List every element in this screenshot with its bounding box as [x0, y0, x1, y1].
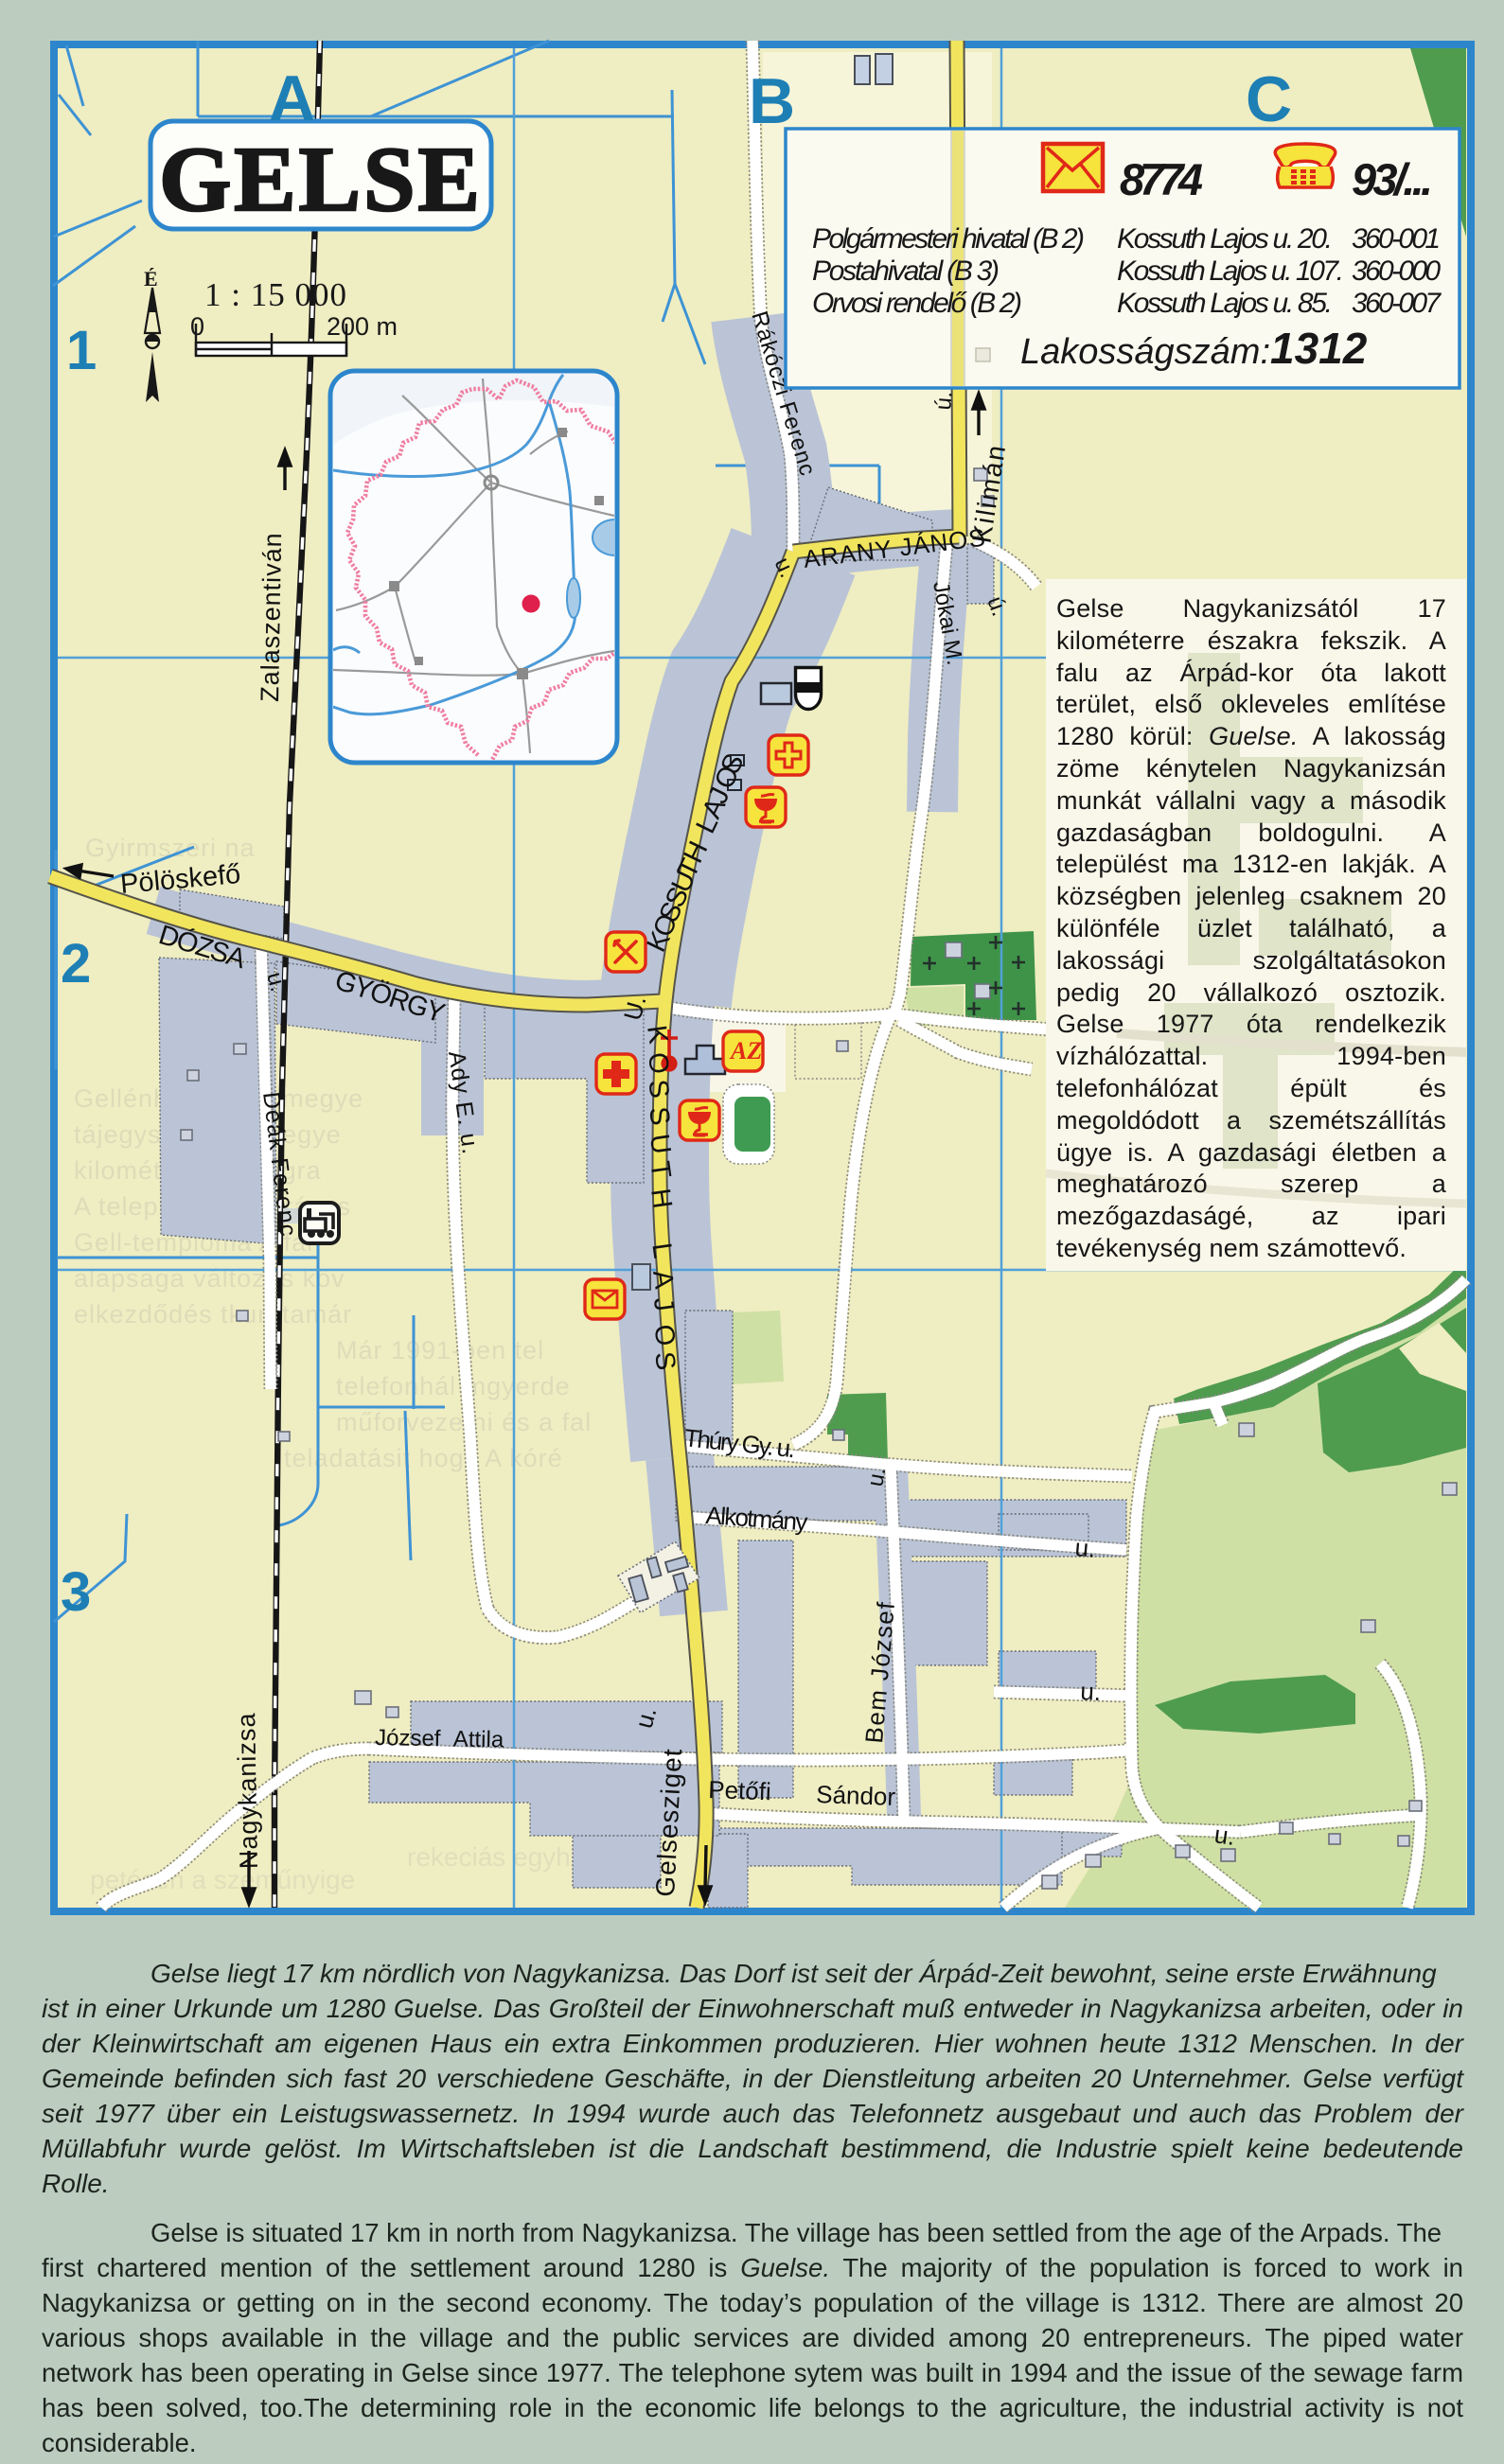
svg-text:1 : 15 000: 1 : 15 000	[204, 276, 347, 313]
svg-text:360-007: 360-007	[1352, 288, 1442, 319]
svg-text:telefonhál mgyerde: telefonhál mgyerde	[336, 1372, 571, 1400]
svg-text:Nagykanizsa: Nagykanizsa	[232, 1712, 263, 1869]
svg-text:0: 0	[190, 312, 204, 341]
svg-text:Kossuth Lajos u. 85.: Kossuth Lajos u. 85.	[1117, 288, 1333, 319]
svg-text:u.: u.	[1073, 1533, 1096, 1563]
svg-text:Kossuth Lajos u. 20.: Kossuth Lajos u. 20.	[1117, 223, 1333, 255]
svg-text:Orvosi rendelő (B 2): Orvosi rendelő (B 2)	[812, 288, 1022, 319]
svg-text:alapsaga változás köv: alapsaga változás köv	[74, 1264, 345, 1293]
svg-text:3: 3	[61, 1561, 91, 1623]
svg-text:Gyirmszeri na: Gyirmszeri na	[85, 834, 256, 862]
svg-text:GELSE: GELSE	[159, 129, 483, 231]
svg-text:B: B	[749, 65, 795, 137]
svg-text:93/...: 93/...	[1352, 154, 1433, 204]
svg-text:É: É	[144, 267, 158, 290]
svg-text:Zalaszentiván: Zalaszentiván	[256, 532, 287, 702]
svg-text:Kossuth Lajos u. 107.: Kossuth Lajos u. 107.	[1117, 255, 1344, 287]
svg-text:A: A	[269, 62, 315, 134]
svg-text:C: C	[1246, 63, 1292, 135]
svg-text:ú.: ú.	[930, 390, 958, 411]
svg-text:teladatásit hogy A kóré: teladatásit hogy A kóré	[284, 1444, 563, 1472]
svg-text:2: 2	[61, 933, 91, 994]
svg-text:u.: u.	[1212, 1820, 1237, 1851]
svg-text:József Attila: József Attila	[375, 1725, 504, 1752]
svg-text:360-001: 360-001	[1352, 223, 1441, 255]
svg-text:Postahivatal (B 3): Postahivatal (B 3)	[812, 255, 1000, 287]
svg-text:8774: 8774	[1120, 154, 1203, 204]
svg-text:AZ: AZ	[729, 1037, 762, 1065]
svg-text:360-000: 360-000	[1352, 255, 1441, 287]
svg-text:200 m: 200 m	[327, 312, 398, 341]
svg-text:Petőfi: Petőfi	[708, 1775, 772, 1805]
svg-text:Sándor: Sándor	[816, 1780, 896, 1811]
svg-text:1: 1	[66, 320, 97, 381]
svg-text:Polgármesteri hivatal (B 2): Polgármesteri hivatal (B 2)	[812, 223, 1085, 255]
svg-text:elkezdődés tkuratamár: elkezdődés tkuratamár	[74, 1300, 352, 1329]
svg-text:u.: u.	[1080, 1677, 1102, 1706]
